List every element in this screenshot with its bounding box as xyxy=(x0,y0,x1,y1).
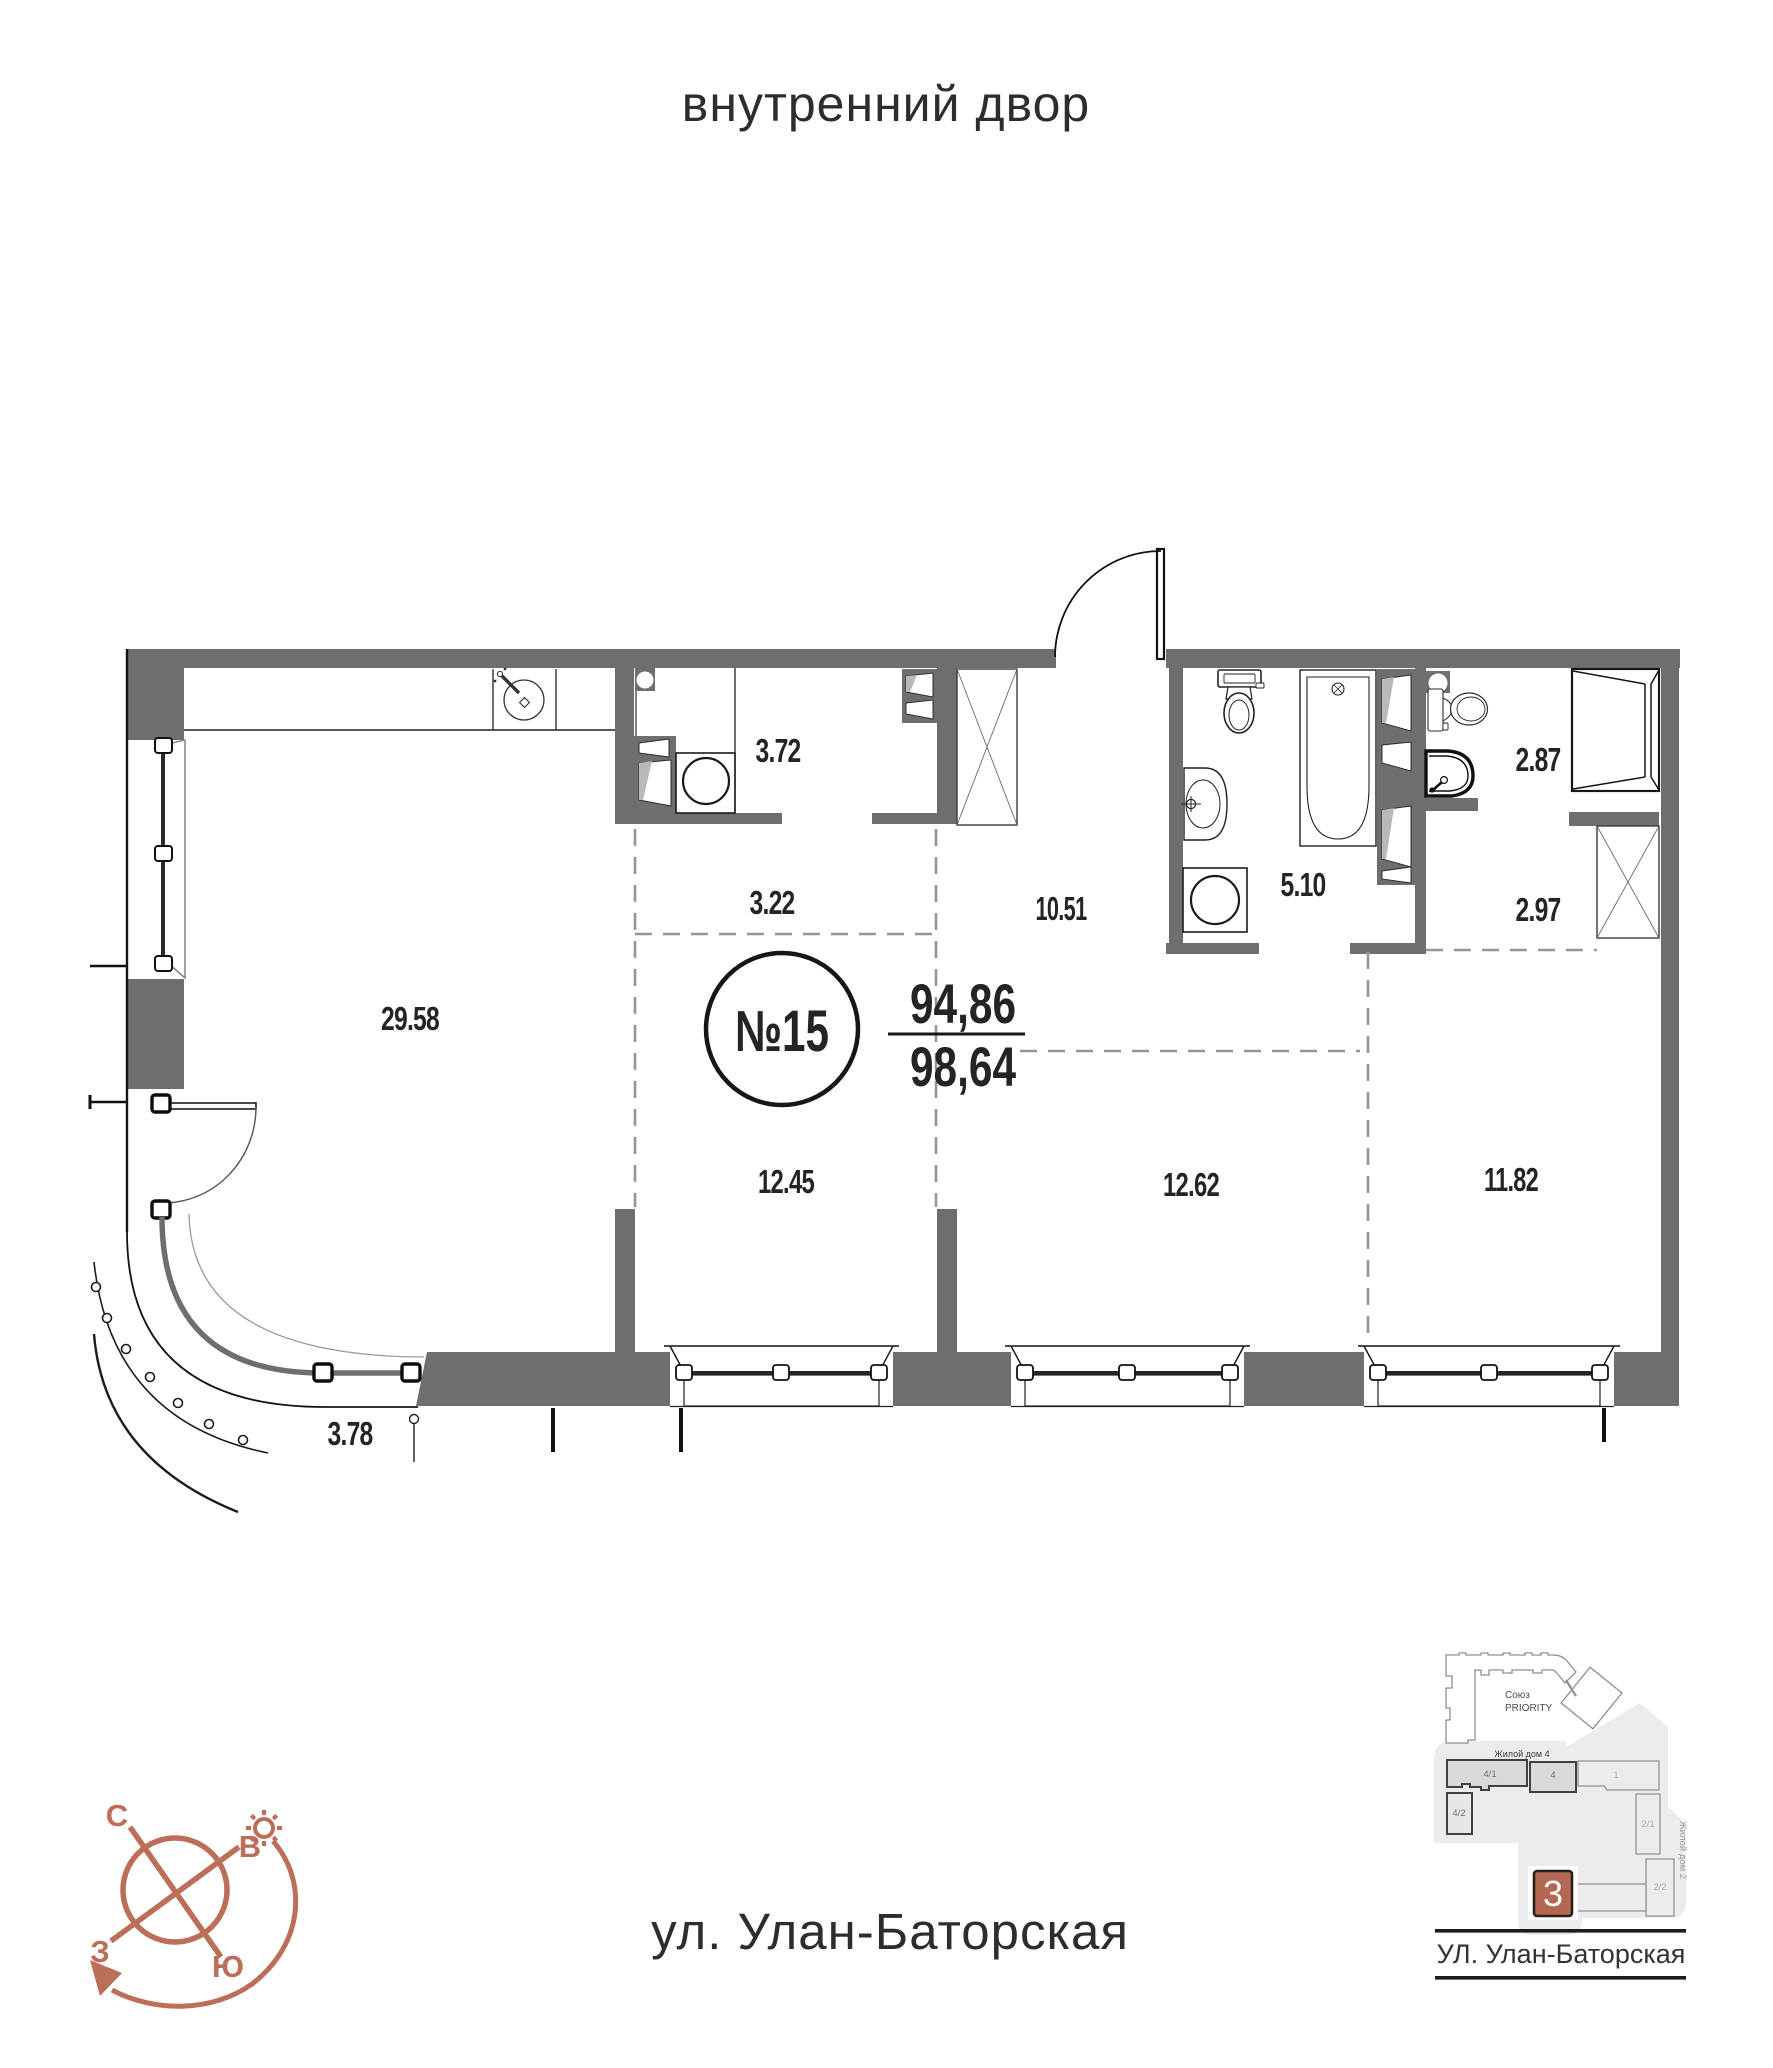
svg-text:№15: №15 xyxy=(735,999,829,1064)
svg-text:3.22: 3.22 xyxy=(750,884,795,921)
svg-text:5.10: 5.10 xyxy=(1281,866,1326,903)
svg-text:В: В xyxy=(239,1829,261,1864)
svg-text:3: 3 xyxy=(1543,1873,1563,1914)
svg-text:4/1: 4/1 xyxy=(1483,1769,1496,1780)
svg-text:2.97: 2.97 xyxy=(1516,891,1561,928)
svg-text:внутренний двор: внутренний двор xyxy=(682,76,1090,132)
svg-text:З: З xyxy=(90,1934,109,1969)
svg-text:10.51: 10.51 xyxy=(1036,890,1087,927)
svg-text:3.72: 3.72 xyxy=(756,732,801,769)
svg-text:4/2: 4/2 xyxy=(1452,1808,1465,1819)
svg-text:2/1: 2/1 xyxy=(1641,1819,1654,1830)
svg-text:4: 4 xyxy=(1550,1770,1555,1781)
svg-text:94,86: 94,86 xyxy=(910,972,1016,1035)
svg-text:Жилой дом 2: Жилой дом 2 xyxy=(1677,1821,1688,1879)
svg-text:1: 1 xyxy=(1613,1770,1618,1781)
svg-text:12.62: 12.62 xyxy=(1163,1166,1219,1203)
svg-text:98,64: 98,64 xyxy=(910,1035,1016,1098)
svg-text:29.58: 29.58 xyxy=(381,1000,439,1037)
svg-text:Союз: Союз xyxy=(1505,1690,1530,1701)
svg-text:PRIORITY: PRIORITY xyxy=(1505,1703,1553,1714)
svg-text:С: С xyxy=(106,1798,128,1833)
svg-text:11.82: 11.82 xyxy=(1484,1161,1538,1198)
svg-text:Жилой дом 4: Жилой дом 4 xyxy=(1494,1749,1549,1759)
svg-text:2.87: 2.87 xyxy=(1516,741,1561,778)
svg-text:ул. Улан-Баторская: ул. Улан-Баторская xyxy=(651,1903,1129,1960)
svg-text:2/2: 2/2 xyxy=(1653,1882,1666,1893)
svg-text:Ю: Ю xyxy=(212,1949,244,1984)
svg-text:12.45: 12.45 xyxy=(758,1163,814,1200)
svg-text:3.78: 3.78 xyxy=(328,1415,373,1452)
svg-text:УЛ. Улан-Баторская: УЛ. Улан-Баторская xyxy=(1437,1939,1686,1969)
